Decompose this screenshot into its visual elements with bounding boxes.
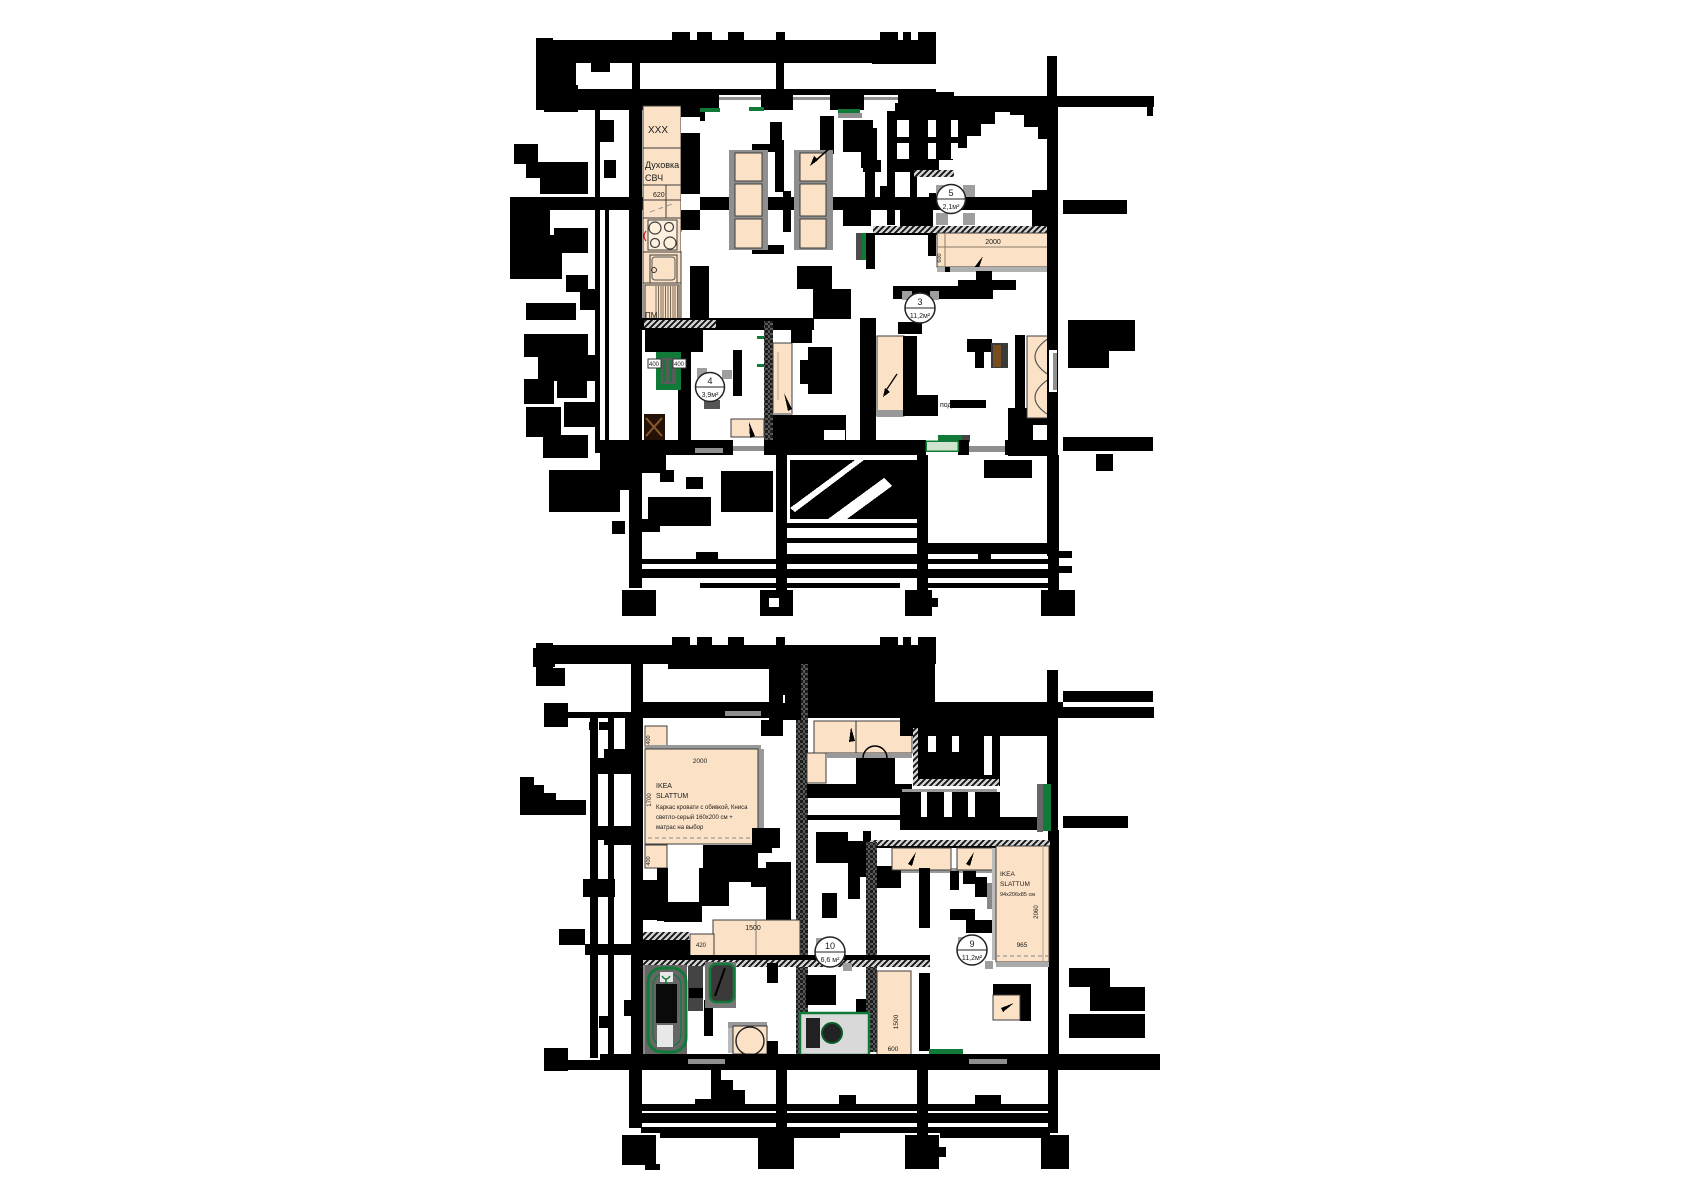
svg-text:965: 965 (1017, 942, 1028, 949)
svg-text:3,9м²: 3,9м² (702, 392, 720, 399)
svg-text:400: 400 (674, 362, 685, 368)
svg-text:11,2м²: 11,2м² (910, 313, 931, 320)
svg-text:1500: 1500 (745, 925, 761, 932)
svg-text:матрас на выбор: матрас на выбор (656, 825, 704, 831)
svg-text:под: под (940, 402, 952, 409)
svg-text:1500: 1500 (893, 1014, 900, 1029)
svg-text:IKEA: IKEA (656, 783, 672, 790)
svg-text:400: 400 (646, 735, 652, 744)
svg-text:94х206х85 см: 94х206х85 см (1000, 892, 1035, 898)
svg-text:2,1м²: 2,1м² (943, 204, 961, 211)
svg-text:400: 400 (649, 362, 660, 368)
svg-text:6,6 м²: 6,6 м² (821, 957, 840, 964)
svg-text:620: 620 (653, 192, 665, 199)
svg-text:5: 5 (948, 188, 953, 198)
svg-text:3: 3 (917, 297, 922, 307)
svg-text:2000: 2000 (985, 239, 1001, 246)
svg-text:SLATTUM: SLATTUM (1000, 881, 1030, 888)
svg-text:IKEA: IKEA (1000, 871, 1015, 878)
svg-text:светло-серый 160х200 см +: светло-серый 160х200 см + (656, 814, 733, 821)
svg-text:2060: 2060 (1034, 905, 1040, 919)
svg-text:2000: 2000 (693, 758, 708, 765)
svg-text:Духовка: Духовка (645, 160, 679, 170)
svg-text:СВЧ: СВЧ (645, 173, 663, 183)
svg-text:10: 10 (825, 941, 835, 951)
svg-text:1700: 1700 (647, 793, 653, 807)
svg-text:600: 600 (937, 253, 943, 262)
svg-text:4: 4 (707, 376, 712, 386)
svg-text:11,2м²: 11,2м² (962, 955, 983, 962)
svg-text:SLATTUM: SLATTUM (656, 793, 688, 800)
svg-text:400: 400 (646, 856, 652, 865)
svg-text:XXX: XXX (648, 125, 668, 136)
svg-text:9: 9 (969, 939, 974, 949)
svg-text:600: 600 (888, 1046, 899, 1053)
svg-text:Каркас кровати с обивкой, Книс: Каркас кровати с обивкой, Книса (656, 804, 748, 811)
svg-text:420: 420 (696, 943, 707, 949)
